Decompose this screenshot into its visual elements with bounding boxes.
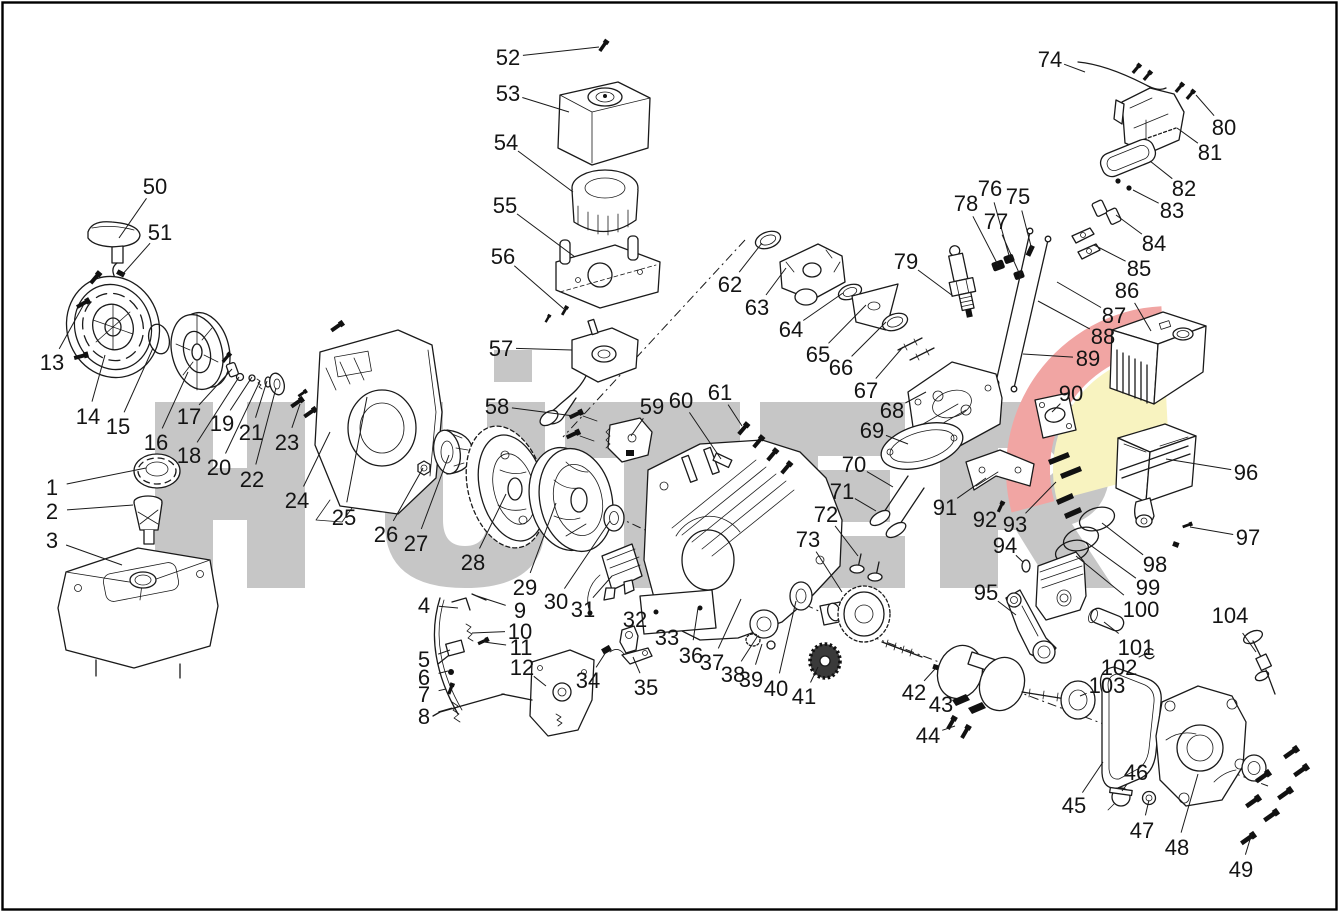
fuel-pipe-parts-drawing [434, 598, 470, 722]
part-label-42: 42 [902, 680, 926, 705]
rope-pulley-drawing [164, 307, 238, 395]
part-label-18: 18 [177, 443, 201, 468]
leader-line-39 [756, 644, 763, 665]
part-label-55: 55 [493, 193, 517, 218]
part-label-46: 46 [1124, 760, 1148, 785]
part-label-77: 77 [984, 209, 1008, 234]
part-label-61: 61 [708, 380, 732, 405]
exploded-view-diagram: 1234567891011121314151617181920212223242… [0, 0, 1339, 912]
part-label-25: 25 [332, 505, 356, 530]
part-label-95: 95 [974, 580, 998, 605]
ignition-coil-drawing [588, 544, 643, 616]
leader-line-82 [1150, 161, 1172, 179]
leader-line-45 [1082, 762, 1103, 793]
leader-line-88 [1038, 301, 1090, 329]
leader-line-62 [739, 243, 762, 272]
part-label-59: 59 [640, 394, 664, 419]
part-label-54: 54 [494, 130, 518, 155]
spark-plug-drawing [942, 243, 981, 319]
part-label-15: 15 [106, 414, 130, 439]
part-label-33: 33 [655, 625, 679, 650]
part-label-4: 4 [418, 593, 430, 618]
part-label-96: 96 [1234, 460, 1258, 485]
part-label-94: 94 [993, 533, 1017, 558]
part-label-83: 83 [1160, 198, 1184, 223]
part-label-60: 60 [669, 388, 693, 413]
part-label-26: 26 [374, 522, 398, 547]
rocker-cover-drawing [1078, 60, 1196, 153]
diagram-page: HÜTER [0, 0, 1339, 912]
part-label-91: 91 [933, 495, 957, 520]
camshaft-drawing [820, 586, 890, 642]
bearing-drawing [604, 505, 624, 531]
part-label-2: 2 [46, 499, 58, 524]
part-label-43: 43 [929, 692, 953, 717]
part-label-40: 40 [764, 676, 788, 701]
part-label-75: 75 [1006, 184, 1030, 209]
fuel-tank-drawing [58, 548, 218, 678]
part-label-71: 71 [830, 479, 854, 504]
valve-seal-parts-drawing [991, 245, 1035, 281]
piston-pin-drawing [1087, 606, 1126, 633]
part-label-13: 13 [40, 350, 64, 375]
leader-line-85 [1094, 245, 1126, 261]
part-label-50: 50 [143, 174, 167, 199]
leader-line-98 [1102, 523, 1143, 555]
part-label-100: 100 [1123, 597, 1160, 622]
part-label-1: 1 [46, 475, 58, 500]
leader-line-87 [1057, 282, 1101, 308]
timing-gear-drawing [810, 644, 942, 678]
leader-line-1 [67, 468, 146, 484]
part-label-34: 34 [576, 668, 600, 693]
leader-line-52 [523, 47, 599, 55]
leader-line-65 [829, 305, 867, 343]
part-label-47: 47 [1130, 818, 1154, 843]
leader-line-74 [1064, 64, 1085, 72]
oil-dipstick-drawing [1242, 628, 1275, 694]
air-filter-element-drawing [572, 170, 638, 235]
part-label-104: 104 [1212, 603, 1249, 628]
leader-line-38 [741, 637, 757, 661]
part-label-79: 79 [894, 249, 918, 274]
part-label-53: 53 [496, 81, 520, 106]
crankcase-cover-drawing [1156, 686, 1266, 806]
fuel-cap-drawing [134, 454, 180, 488]
leader-line-67 [876, 347, 903, 379]
part-label-29: 29 [513, 575, 537, 600]
leader-line-10 [472, 632, 505, 633]
part-label-48: 48 [1165, 835, 1189, 860]
part-label-27: 27 [404, 531, 428, 556]
part-label-89: 89 [1076, 346, 1100, 371]
part-label-58: 58 [485, 394, 509, 419]
part-label-45: 45 [1062, 793, 1086, 818]
part-label-65: 65 [806, 342, 830, 367]
muffler-screws-drawing [1172, 521, 1193, 547]
part-label-70: 70 [842, 452, 866, 477]
part-label-57: 57 [489, 336, 513, 361]
part-label-62: 62 [718, 272, 742, 297]
part-label-41: 41 [792, 684, 816, 709]
rocker-parts-drawing [1072, 178, 1132, 259]
part-label-66: 66 [829, 355, 853, 380]
leader-line-7 [439, 689, 446, 691]
oil-drain-parts-drawing [1108, 787, 1156, 810]
part-label-67: 67 [854, 378, 878, 403]
part-label-56: 56 [491, 244, 515, 269]
leader-line-2 [67, 505, 133, 510]
part-label-24: 24 [285, 488, 309, 513]
leader-line-79 [918, 270, 953, 296]
leader-line-55 [517, 214, 575, 257]
part-label-97: 97 [1236, 525, 1260, 550]
part-label-12: 12 [510, 655, 534, 680]
part-label-52: 52 [496, 45, 520, 70]
part-label-22: 22 [240, 467, 264, 492]
part-label-44: 44 [916, 723, 940, 748]
part-label-20: 20 [207, 455, 231, 480]
part-label-98: 98 [1143, 552, 1167, 577]
leader-line-11 [484, 642, 506, 645]
part-label-49: 49 [1229, 857, 1253, 882]
leader-line-57 [516, 348, 572, 350]
leader-line-77 [1002, 235, 1020, 275]
part-label-23: 23 [275, 430, 299, 455]
air-filter-base-drawing [544, 236, 660, 323]
leader-line-97 [1190, 527, 1233, 535]
part-label-84: 84 [1142, 231, 1166, 256]
part-label-30: 30 [544, 589, 568, 614]
part-label-28: 28 [461, 550, 485, 575]
part-label-21: 21 [239, 420, 263, 445]
part-label-16: 16 [144, 430, 168, 455]
part-label-69: 69 [860, 418, 884, 443]
camshaft-bearing-drawing [790, 582, 812, 610]
part-label-76: 76 [978, 176, 1002, 201]
part-label-81: 81 [1198, 140, 1222, 165]
leader-line-84 [1116, 215, 1142, 234]
leader-line-8 [438, 708, 452, 712]
part-label-3: 3 [46, 528, 58, 553]
part-label-35: 35 [634, 675, 658, 700]
part-label-78: 78 [954, 191, 978, 216]
part-label-32: 32 [623, 607, 647, 632]
part-label-74: 74 [1038, 47, 1062, 72]
leader-line-9 [477, 596, 506, 605]
leader-line-66 [852, 322, 886, 356]
part-label-14: 14 [76, 404, 100, 429]
leader-line-80 [1196, 95, 1214, 116]
leader-line-51 [121, 243, 150, 276]
part-label-8: 8 [418, 704, 430, 729]
part-label-63: 63 [745, 295, 769, 320]
part-label-103: 103 [1089, 673, 1126, 698]
leader-line-83 [1133, 190, 1159, 203]
part-label-86: 86 [1115, 278, 1139, 303]
leader-line-54 [518, 151, 573, 192]
part-label-31: 31 [571, 597, 595, 622]
muffler-drawing [1116, 424, 1196, 527]
part-label-73: 73 [796, 527, 820, 552]
part-label-17: 17 [177, 404, 201, 429]
part-label-92: 92 [973, 507, 997, 532]
leader-line-34 [596, 652, 606, 667]
air-filter-cover-drawing [558, 39, 650, 165]
part-label-80: 80 [1212, 115, 1236, 140]
part-label-64: 64 [779, 317, 803, 342]
part-label-19: 19 [210, 411, 234, 436]
part-label-90: 90 [1059, 381, 1083, 406]
part-label-51: 51 [148, 220, 172, 245]
breather-parts-drawing [466, 594, 490, 646]
part-label-39: 39 [739, 667, 763, 692]
part-label-72: 72 [814, 502, 838, 527]
